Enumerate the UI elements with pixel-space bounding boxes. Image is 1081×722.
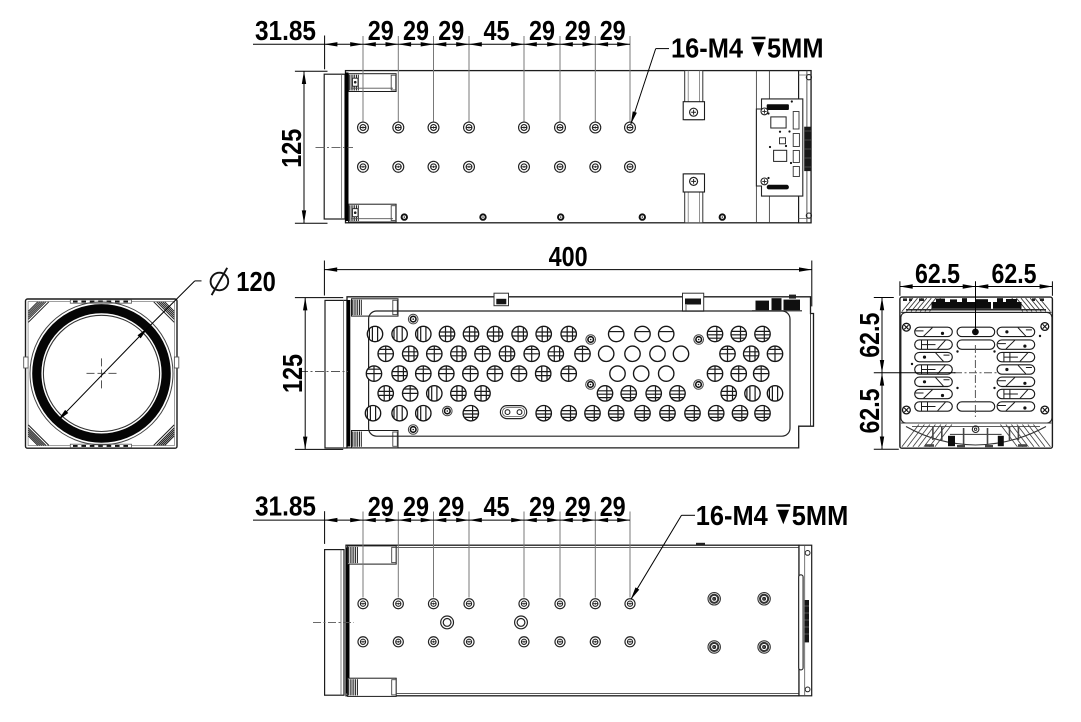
svg-text:5MM: 5MM bbox=[792, 500, 849, 531]
svg-text:29: 29 bbox=[403, 15, 429, 46]
svg-text:62.5: 62.5 bbox=[854, 313, 885, 358]
svg-text:62.5: 62.5 bbox=[992, 258, 1037, 289]
svg-text:29: 29 bbox=[529, 15, 555, 46]
svg-text:5MM: 5MM bbox=[767, 32, 824, 63]
svg-text:31.85: 31.85 bbox=[255, 490, 316, 521]
svg-text:29: 29 bbox=[565, 491, 591, 522]
svg-text:45: 45 bbox=[484, 15, 510, 46]
svg-text:29: 29 bbox=[600, 491, 626, 522]
svg-text:29: 29 bbox=[600, 15, 626, 46]
svg-text:29: 29 bbox=[565, 15, 591, 46]
svg-text:62.5: 62.5 bbox=[854, 389, 885, 434]
svg-text:400: 400 bbox=[549, 241, 588, 272]
svg-text:29: 29 bbox=[529, 491, 555, 522]
svg-text:16-M4: 16-M4 bbox=[696, 500, 768, 531]
svg-text:31.85: 31.85 bbox=[255, 15, 316, 46]
svg-text:29: 29 bbox=[438, 491, 464, 522]
svg-text:125: 125 bbox=[276, 129, 307, 168]
svg-text:16-M4: 16-M4 bbox=[671, 32, 743, 63]
svg-text:29: 29 bbox=[403, 491, 429, 522]
svg-text:29: 29 bbox=[368, 15, 394, 46]
svg-text:120: 120 bbox=[236, 266, 275, 297]
svg-text:125: 125 bbox=[277, 354, 308, 393]
svg-text:29: 29 bbox=[438, 15, 464, 46]
svg-text:45: 45 bbox=[484, 491, 510, 522]
svg-text:62.5: 62.5 bbox=[915, 258, 960, 289]
svg-text:29: 29 bbox=[368, 491, 394, 522]
